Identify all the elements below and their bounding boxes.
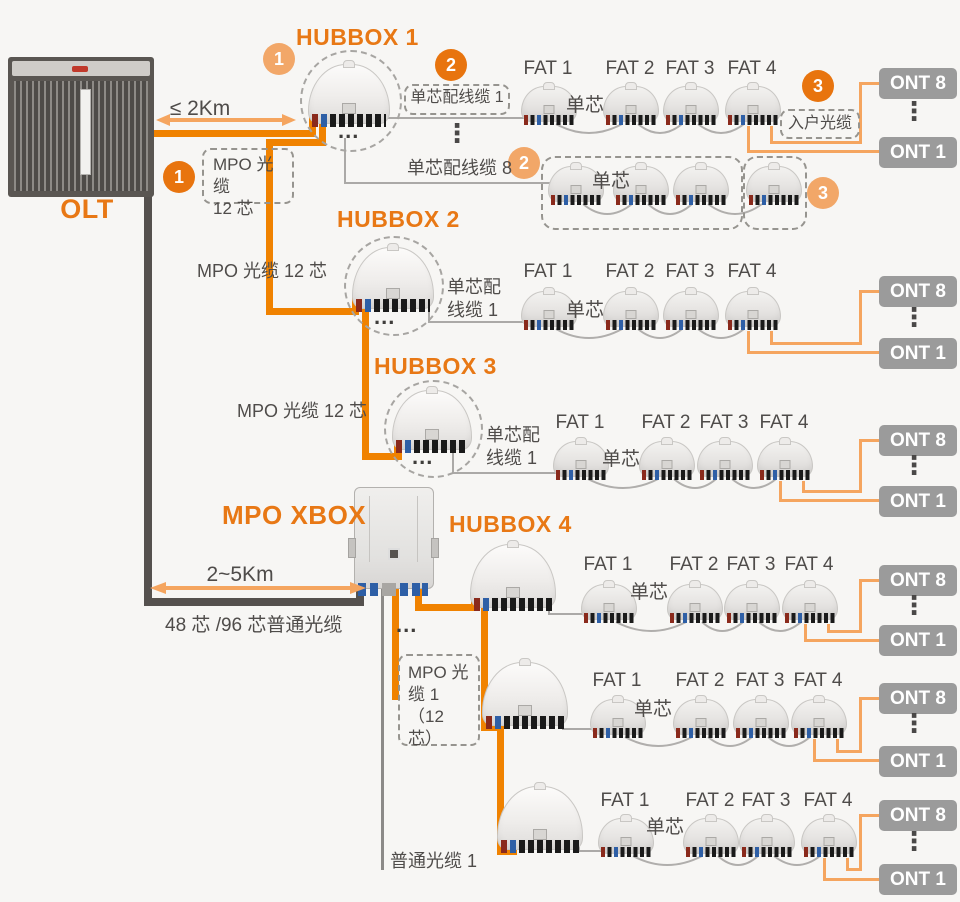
fat3-device-row1 <box>663 86 719 122</box>
drop-ont1-g2-h <box>747 351 879 354</box>
fat2-ports-row6 <box>686 847 736 857</box>
branch-fat2-ports <box>616 195 666 205</box>
hubbox4-label: HUBBOX 4 <box>449 511 572 538</box>
note-patch1-hub3: 单芯配 线缆 1 <box>486 424 540 469</box>
fat3-label-row2: FAT 3 <box>658 261 722 283</box>
badge-2-patch8: 2 <box>508 147 540 179</box>
fat1-device-row3 <box>553 441 609 477</box>
fat1-device-row4 <box>581 584 637 620</box>
drop-ont1-g5-h <box>813 759 879 762</box>
badge-2-patch1: 2 <box>435 49 467 81</box>
distance-olt-xbox: 2~5Km <box>180 562 300 588</box>
fat2-device-row2 <box>603 291 659 327</box>
xbox-qr-label <box>388 548 400 560</box>
fat1-ports-row5 <box>593 728 643 738</box>
hubbox1-label: HUBBOX 1 <box>296 24 419 51</box>
fat4-ports-row3 <box>760 470 810 480</box>
fat3-ports-row2 <box>666 320 716 330</box>
fat1-label-row1: FAT 1 <box>516 58 580 80</box>
fat4-device-row5 <box>791 699 847 735</box>
hub6-ports <box>501 840 579 853</box>
mpo-xbox-label: MPO XBOX <box>222 500 366 531</box>
fat4-label-row4: FAT 4 <box>777 554 841 576</box>
fat4-ports-row2 <box>728 320 778 330</box>
fat4-device-row4 <box>782 584 838 620</box>
fat4-label-row3: FAT 4 <box>752 412 816 434</box>
badge-3-homedrop: 3 <box>802 70 834 102</box>
ftth-topology-diagram: OLT MPO XBOX HUBBOX 1 ... HUBBOX 2 ... H… <box>0 0 960 902</box>
fat2-device-row3 <box>639 441 695 477</box>
fat4-device-row2 <box>725 291 781 327</box>
ont-vdots-g3: ⋮ <box>901 452 927 478</box>
drop-ont8-g2-h2 <box>859 290 879 293</box>
single-core-row5: 单芯 <box>634 698 672 722</box>
ont-vdots-g5: ⋮ <box>901 710 927 736</box>
fat3-label-row3: FAT 3 <box>692 412 756 434</box>
drop-ont1-g1-h <box>747 150 879 153</box>
ont1-g4: ONT 1 <box>879 625 957 656</box>
drop-ont8-g4-h1 <box>827 630 862 633</box>
fat1-label-row5: FAT 1 <box>585 670 649 692</box>
drop-ont1-g1-v <box>747 126 750 153</box>
branch-fat3-ports <box>676 195 726 205</box>
drop-ont8-g3-v2 <box>859 439 862 493</box>
fat1-label-row2: FAT 1 <box>516 261 580 283</box>
single-core-row4: 单芯 <box>630 581 668 605</box>
distance-olt-hubbox: ≤ 2Km <box>145 96 255 122</box>
fat4-label-row6: FAT 4 <box>796 790 860 812</box>
note-mpo-12-hub2: MPO 光缆 12 芯 <box>197 260 327 283</box>
note-common-cable-1: 普通光缆 1 <box>390 850 477 873</box>
note-common-cable: 48 芯 /96 芯普通光缆 <box>165 614 342 638</box>
hubbox1-ellipsis: ... <box>338 126 359 136</box>
ont-vdots-g6: ⋮ <box>901 828 927 854</box>
note-mpo-12-hub3: MPO 光缆 12 芯 <box>237 400 367 423</box>
cable-xbox-hubbox4-across <box>415 604 478 611</box>
fat4-ports-row6 <box>804 847 854 857</box>
fat4-ports-row5 <box>794 728 844 738</box>
ont1-g5: ONT 1 <box>879 746 957 777</box>
drop-ont8-g1-v2 <box>859 82 862 144</box>
drop-ont1-g3-h <box>779 499 879 502</box>
hubbox3-ellipsis: ... <box>412 452 433 462</box>
badge-1-hubbox1: 1 <box>263 43 295 75</box>
ont-vdots-g2: ⋮ <box>901 304 927 330</box>
drop-ont8-g4-v2 <box>859 579 862 633</box>
feedline-row2-h <box>428 321 525 323</box>
single-core-row3: 单芯 <box>602 448 640 472</box>
branch-fat4-device <box>746 166 802 202</box>
fat4-label-row1: FAT 4 <box>720 58 784 80</box>
drop-ont8-g5-h2 <box>859 697 879 700</box>
fat4-ports-row1 <box>728 115 778 125</box>
single-core-row6: 单芯 <box>646 816 684 840</box>
olt-device <box>8 57 154 197</box>
ont1-g3: ONT 1 <box>879 486 957 517</box>
fat2-device-row1 <box>603 86 659 122</box>
hubbox4-ports <box>474 598 552 611</box>
note-mpo-cable-1: MPO 光 缆 1 （12 芯） <box>398 654 480 746</box>
branch-fat4-ports <box>749 195 799 205</box>
fat3-label-row1: FAT 3 <box>658 58 722 80</box>
hubbox2-ellipsis: ... <box>374 312 395 322</box>
fat1-label-row4: FAT 1 <box>576 554 640 576</box>
note-patch-cable-1: 单芯配线缆 1 <box>404 84 510 115</box>
badge-3-branch: 3 <box>807 177 839 209</box>
ont1-g2: ONT 1 <box>879 338 957 369</box>
cable-hubbox1-hubbox2-bottom <box>266 308 359 315</box>
drop-ont1-g4-h <box>804 639 879 642</box>
fat4-device-row3 <box>757 441 813 477</box>
fat4-device-row1 <box>725 86 781 122</box>
ont-vdots-g4: ⋮ <box>901 592 927 618</box>
drop-ont8-g5-v2 <box>859 697 862 753</box>
fat4-label-row5: FAT 4 <box>786 670 850 692</box>
drop-ont8-g4-h2 <box>859 579 879 582</box>
fat2-ports-row2 <box>606 320 656 330</box>
fat4-label-row2: FAT 4 <box>720 261 784 283</box>
drop-ont8-g6-h2 <box>859 814 879 817</box>
drop-ont8-g2-h1 <box>770 342 862 345</box>
ont8-g1: ONT 8 <box>879 68 957 99</box>
xbox-ports <box>358 583 428 596</box>
fat2-ports-row5 <box>676 728 726 738</box>
badge-1-olt: 1 <box>163 161 195 193</box>
fat2-ports-row4 <box>670 613 720 623</box>
fat3-device-row4 <box>724 584 780 620</box>
fat2-device-row4 <box>667 584 723 620</box>
drop-ont8-g6-v2 <box>859 814 862 871</box>
hub6-device <box>497 786 583 850</box>
fat1-ports-row3 <box>556 470 606 480</box>
fat2-label-row2: FAT 2 <box>598 261 662 283</box>
fat3-ports-row1 <box>666 115 716 125</box>
branch-fat3-device <box>673 166 729 202</box>
drop-ont8-g3-h2 <box>859 439 879 442</box>
cable-olt-xbox-horizontal <box>144 598 364 606</box>
hub5-ports <box>486 716 564 729</box>
fat3-device-row6 <box>739 818 795 854</box>
fat3-ports-row5 <box>736 728 786 738</box>
fat3-device-row3 <box>697 441 753 477</box>
olt-label: OLT <box>42 194 132 225</box>
note-mpo-12: MPO 光缆 12 芯 <box>202 148 294 204</box>
feedline-branch-h <box>344 182 550 184</box>
hub5-device <box>482 662 568 726</box>
drop-ont1-g6-h <box>823 878 879 881</box>
drop-ont8-g1-h1 <box>770 141 862 144</box>
fat3-label-row6: FAT 3 <box>734 790 798 812</box>
ont-vdots-g1: ⋮ <box>901 98 927 124</box>
hubbox2-label: HUBBOX 2 <box>337 206 460 233</box>
cable-olt-xbox-vertical <box>144 137 152 605</box>
fat3-label-row5: FAT 3 <box>728 670 792 692</box>
fat2-label-row3: FAT 2 <box>634 412 698 434</box>
cable-hubbox1-hubbox2-top <box>266 139 326 146</box>
fat4-device-row6 <box>801 818 857 854</box>
fat1-ports-row4 <box>584 613 634 623</box>
single-core-branch: 单芯 <box>592 170 630 194</box>
fat2-device-row5 <box>673 699 729 735</box>
note-patch1-hub2: 单芯配 线缆 1 <box>447 276 501 321</box>
hubbox3-label: HUBBOX 3 <box>374 353 497 380</box>
fat3-ports-row3 <box>700 470 750 480</box>
olt-white-card <box>80 89 91 175</box>
fat3-device-row2 <box>663 291 719 327</box>
fat4-ports-row4 <box>785 613 835 623</box>
branch-fat1-ports <box>551 195 601 205</box>
note-patch-cable-8: 单芯配线缆 8 <box>407 157 512 180</box>
fat2-label-row6: FAT 2 <box>678 790 742 812</box>
fat2-label-row1: FAT 2 <box>598 58 662 80</box>
cable-olt-hubbox1 <box>150 130 316 137</box>
drop-ont8-g1-h2 <box>859 82 879 85</box>
drop-ont8-g2-v2 <box>859 290 862 345</box>
xbox-ellipsis: ... <box>396 620 417 630</box>
xbox-right-lug <box>431 538 439 558</box>
fat2-device-row6 <box>683 818 739 854</box>
cable-common-1 <box>381 587 384 870</box>
note-home-drop-cable: 入户光缆 <box>780 109 860 139</box>
fat1-ports-row6 <box>601 847 651 857</box>
fat3-device-row5 <box>733 699 789 735</box>
drop-ont8-g3-h1 <box>802 490 862 493</box>
fat2-ports-row1 <box>606 115 656 125</box>
fat3-ports-row6 <box>742 847 792 857</box>
feedline-row3-h <box>452 472 560 474</box>
ont1-g6: ONT 1 <box>879 864 957 895</box>
fat3-label-row4: FAT 3 <box>719 554 783 576</box>
patch-cable-vdots: ⋮ <box>444 120 470 146</box>
fat2-label-row4: FAT 2 <box>662 554 726 576</box>
fat1-label-row3: FAT 1 <box>548 412 612 434</box>
fat2-label-row5: FAT 2 <box>668 670 732 692</box>
single-core-row2: 单芯 <box>566 299 604 323</box>
hubbox4-device <box>470 544 556 608</box>
ont1-g1: ONT 1 <box>879 137 957 168</box>
olt-top-panel <box>12 61 150 76</box>
single-core-row1: 单芯 <box>566 94 604 118</box>
fat2-ports-row3 <box>642 470 692 480</box>
fat3-ports-row4 <box>727 613 777 623</box>
fat1-label-row6: FAT 1 <box>593 790 657 812</box>
xbox-left-lug <box>348 538 356 558</box>
